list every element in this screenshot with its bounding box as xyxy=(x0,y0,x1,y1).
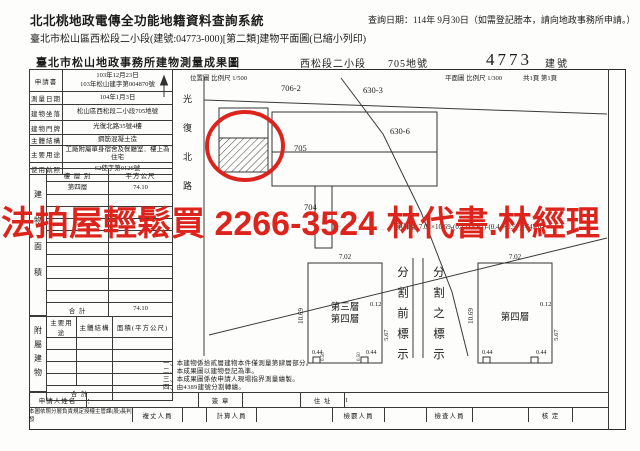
dim-right-lower: 5.67 xyxy=(383,329,390,341)
plan-scale: 平面圖 比例尺 1/300 xyxy=(445,73,502,82)
note-line: 一、本建物係拾貳層建物本件僅測量第肆層部分。 xyxy=(163,360,423,368)
dim-notch: 0.44 xyxy=(366,350,377,356)
dim-left: 10.69 xyxy=(297,308,305,324)
parcel-630-3: 630-3 xyxy=(363,85,383,95)
page-info: 共1頁 第1頁 xyxy=(523,73,558,82)
dim-top: 7.02 xyxy=(339,253,352,261)
dim-right-upper: 0.12 xyxy=(540,301,551,308)
subject-building-hatched xyxy=(219,138,268,172)
note-line: 二、本成果圖以建物登記為準。 xyxy=(163,368,423,376)
parcel-705: 705 xyxy=(294,143,307,153)
dim-notch: 0.44 xyxy=(482,350,493,356)
dim-top: 7.02 xyxy=(509,253,522,261)
location-scale: 位置圖 比例尺 1/500 xyxy=(190,73,247,82)
plan-floor-label: 第四層 xyxy=(501,311,530,323)
north-arrow-icon xyxy=(161,76,168,97)
parcel-706-2: 706-2 xyxy=(281,83,301,93)
plan-floor-label: 第四層 xyxy=(331,313,360,325)
floor-plan-before-split xyxy=(308,263,382,363)
note-line: 四、由4389建號分割轉繪。 xyxy=(163,384,423,392)
note-line: 三、本成果圖係依申請人現場指界測量繪製。 xyxy=(163,376,423,384)
dim-left: 10.69 xyxy=(467,308,475,324)
red-watermark-text: 法拍屋輕鬆買 2266-3524 林代書.林經理 xyxy=(1,196,600,245)
plan-floor-label: 第三層 xyxy=(331,301,360,313)
parcel-630-6: 630-6 xyxy=(390,126,410,136)
dim-right-upper: 0.12 xyxy=(370,301,381,308)
notes-block: 一、本建物係拾貳層建物本件僅測量第肆層部分。 二、本成果圖以建物登記為準。 三、… xyxy=(163,360,423,392)
dim-right-lower: 5.67 xyxy=(553,329,560,341)
dim-notch: 0.44 xyxy=(536,350,547,356)
